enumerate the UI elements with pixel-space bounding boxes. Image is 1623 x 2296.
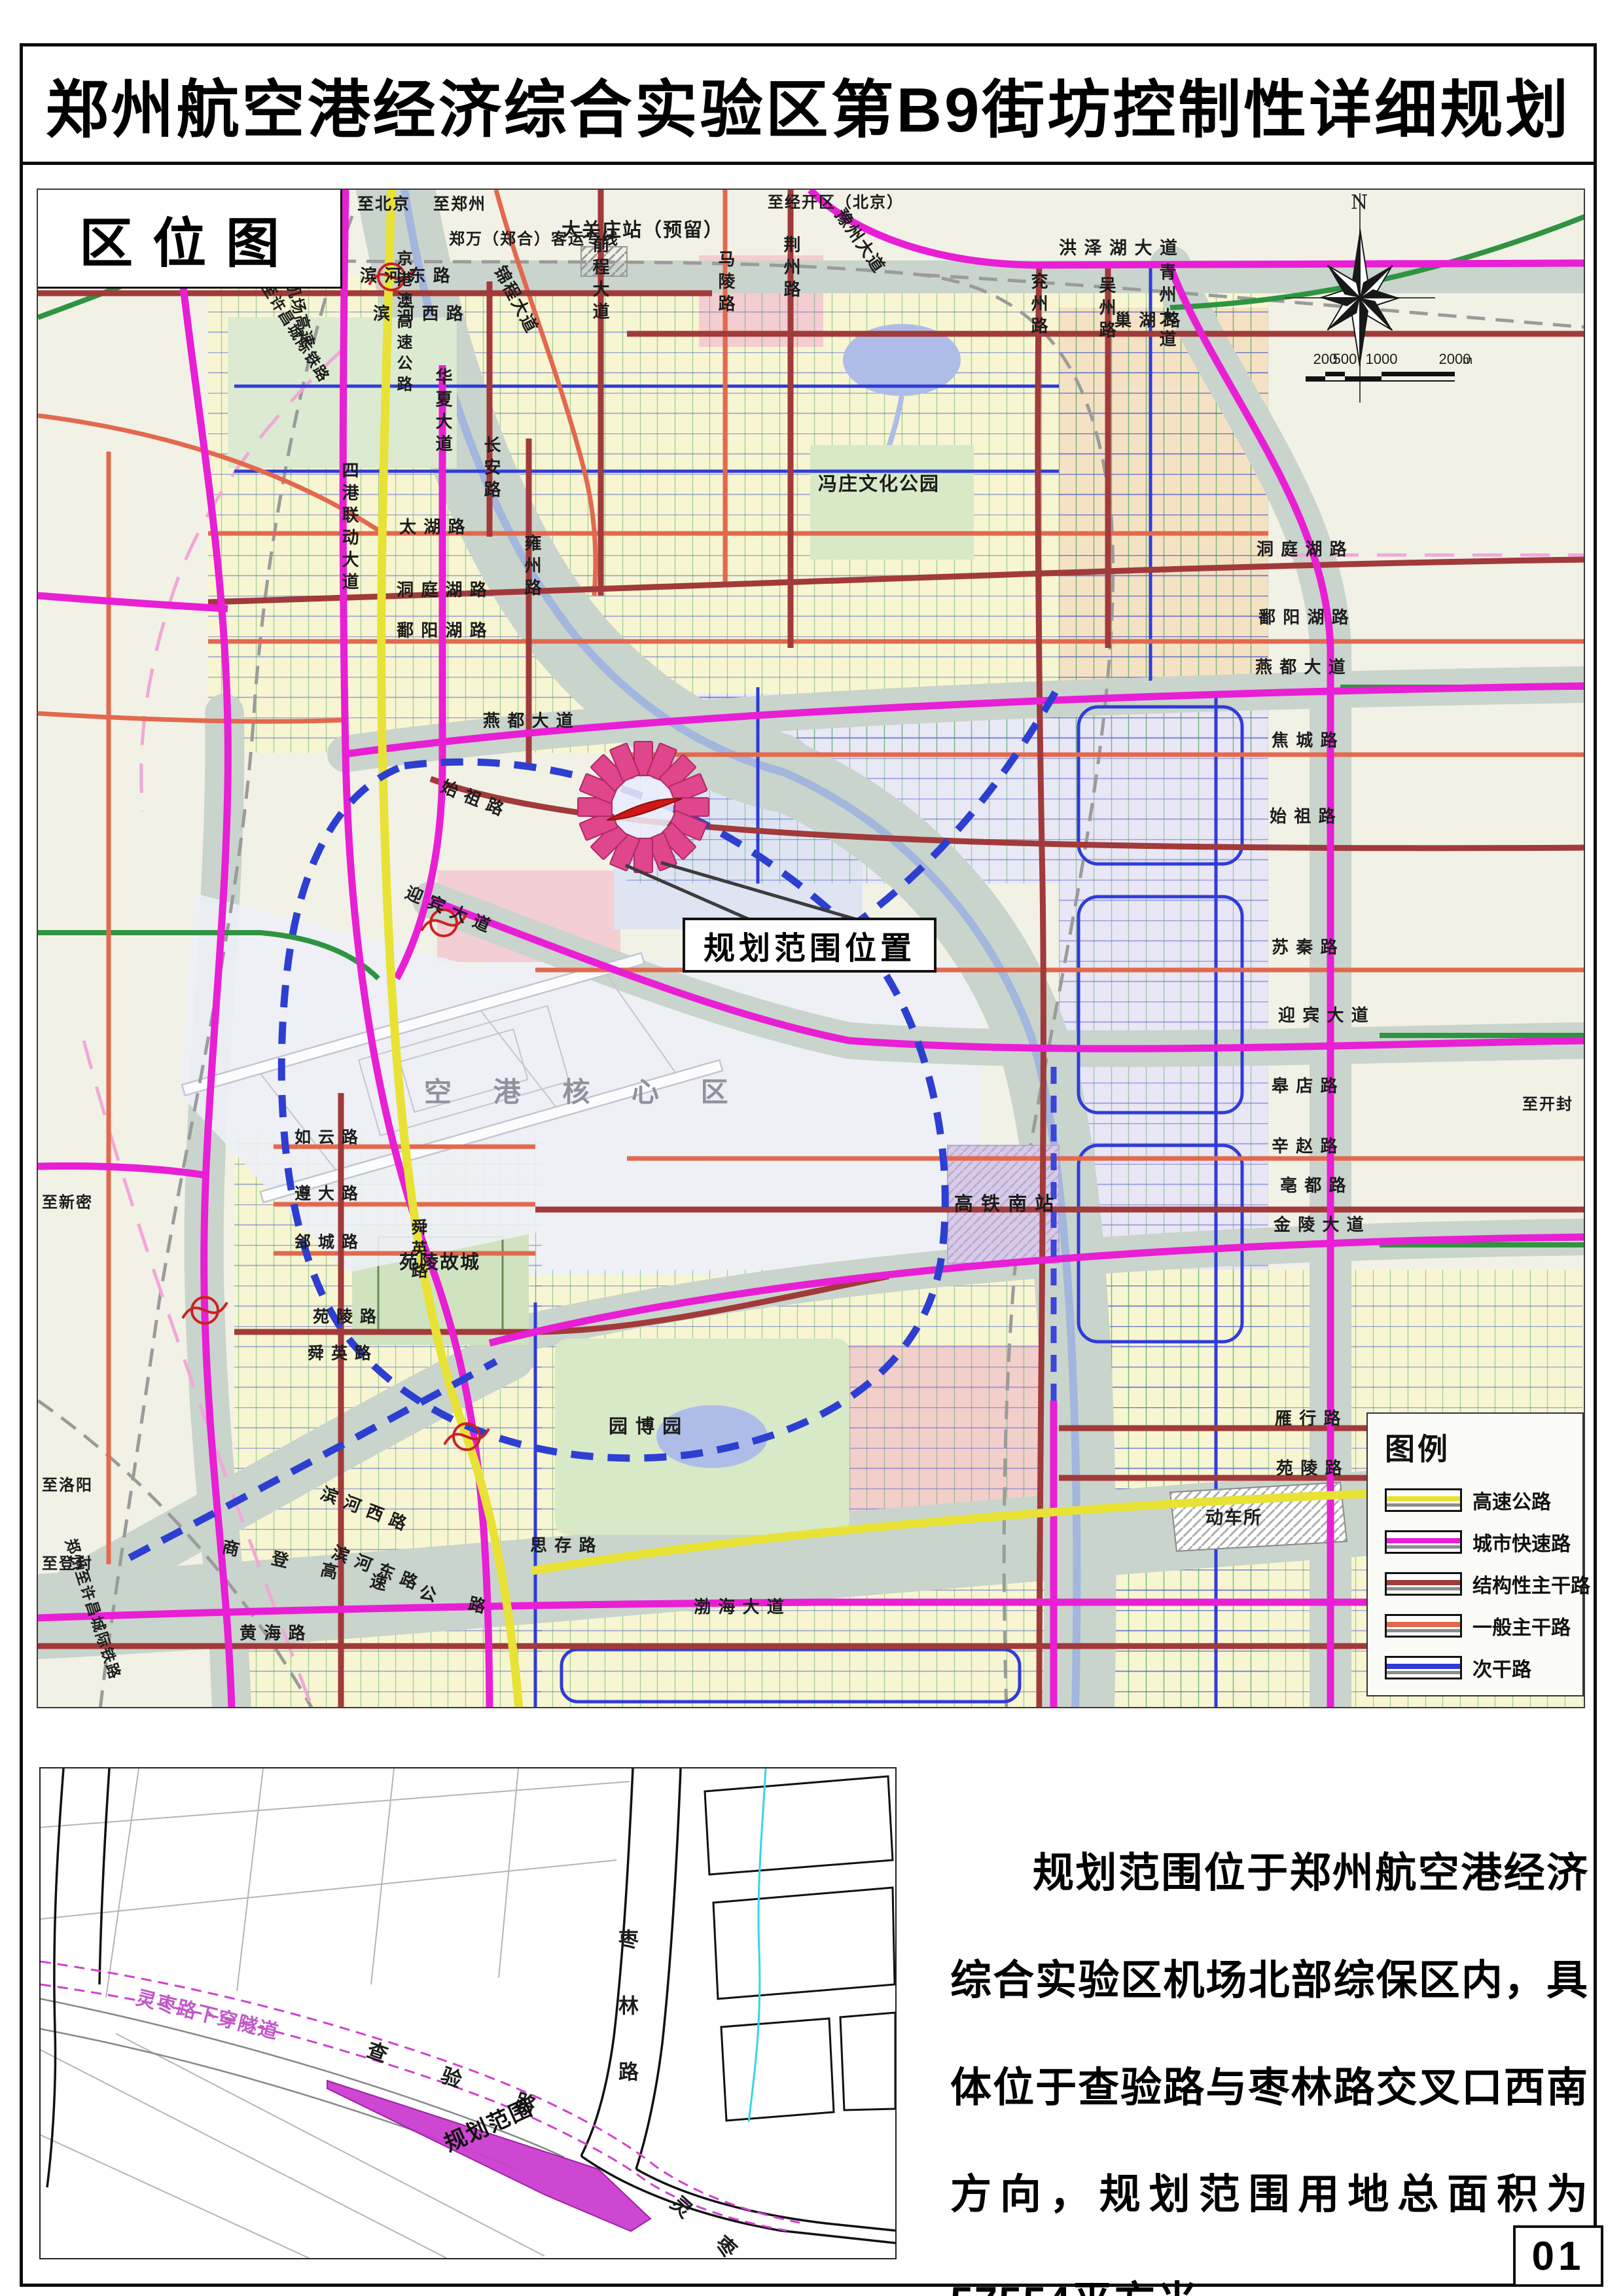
detail-black-roads <box>47 1768 895 2243</box>
legend-label-4: 次干路 <box>1472 1653 1531 1682</box>
legend-swatch-3 <box>1385 1614 1462 1638</box>
legend-swatch-1 <box>1385 1530 1462 1554</box>
legend-item-3: 一般主干路 <box>1385 1605 1582 1647</box>
location-map: N 20050010002000 m 至北京至郑州郑万（郑合）客运专线大关庄站（… <box>37 188 1585 1708</box>
detail-stream <box>749 1768 766 2122</box>
scale-unit: m <box>1463 353 1472 367</box>
legend-swatch-4 <box>1385 1656 1462 1679</box>
planning-site-marker <box>578 742 709 872</box>
page-number-box: 01 <box>1513 2225 1603 2287</box>
legend-label-0: 高速公路 <box>1472 1486 1551 1515</box>
legend-item-1: 城市快速路 <box>1385 1521 1582 1563</box>
legend-swatch-0 <box>1385 1488 1462 1512</box>
detail-tunnel-dashed <box>41 1962 800 2231</box>
description-paragraph: 规划范围位于郑州航空港经济综合实验区机场北部综保区内，具体位于查验路与枣林路交叉… <box>950 1820 1589 2296</box>
title-bar: 郑州航空港经济综合实验区第B9街坊控制性详细规划 <box>23 46 1594 165</box>
map-corner-title: 区位图 <box>38 190 342 289</box>
scale-bar: 20050010002000 m <box>1298 351 1481 390</box>
callout-planning-location: 规划范围位置 <box>683 918 936 973</box>
callout-text: 规划范围位置 <box>704 922 916 968</box>
legend-label-1: 城市快速路 <box>1472 1528 1571 1556</box>
page-title: 郑州航空港经济综合实验区第B9街坊控制性详细规划 <box>46 59 1571 150</box>
scale-tick-1000: 1000 <box>1366 351 1398 368</box>
detail-map: 灵枣路下穿隧道查 验 路规划范围枣林路灵 枣 路 <box>39 1767 897 2259</box>
map-corner-title-text: 区位图 <box>79 200 299 278</box>
legend-swatch-2 <box>1385 1572 1462 1596</box>
plan-sheet: 郑州航空港经济综合实验区第B9街坊控制性详细规划 <box>0 0 1623 2296</box>
legend: 图例 高速公路城市快速路结构性主干路一般主干路次干路 <box>1366 1412 1584 1696</box>
legend-item-2: 结构性主干路 <box>1385 1563 1582 1605</box>
legend-item-4: 次干路 <box>1385 1647 1582 1689</box>
legend-label-3: 一般主干路 <box>1472 1611 1571 1640</box>
legend-label-2: 结构性主干路 <box>1472 1570 1590 1598</box>
page-number: 01 <box>1532 2233 1585 2280</box>
compass-north-label: N <box>1351 191 1368 214</box>
scale-tick-500: 500 <box>1333 351 1357 368</box>
legend-title: 图例 <box>1385 1426 1582 1469</box>
legend-item-0: 高速公路 <box>1385 1479 1582 1521</box>
detail-black-parcels <box>705 1776 895 2121</box>
scale-bar-graphic <box>1298 370 1481 386</box>
detail-map-graphic <box>41 1768 895 2258</box>
